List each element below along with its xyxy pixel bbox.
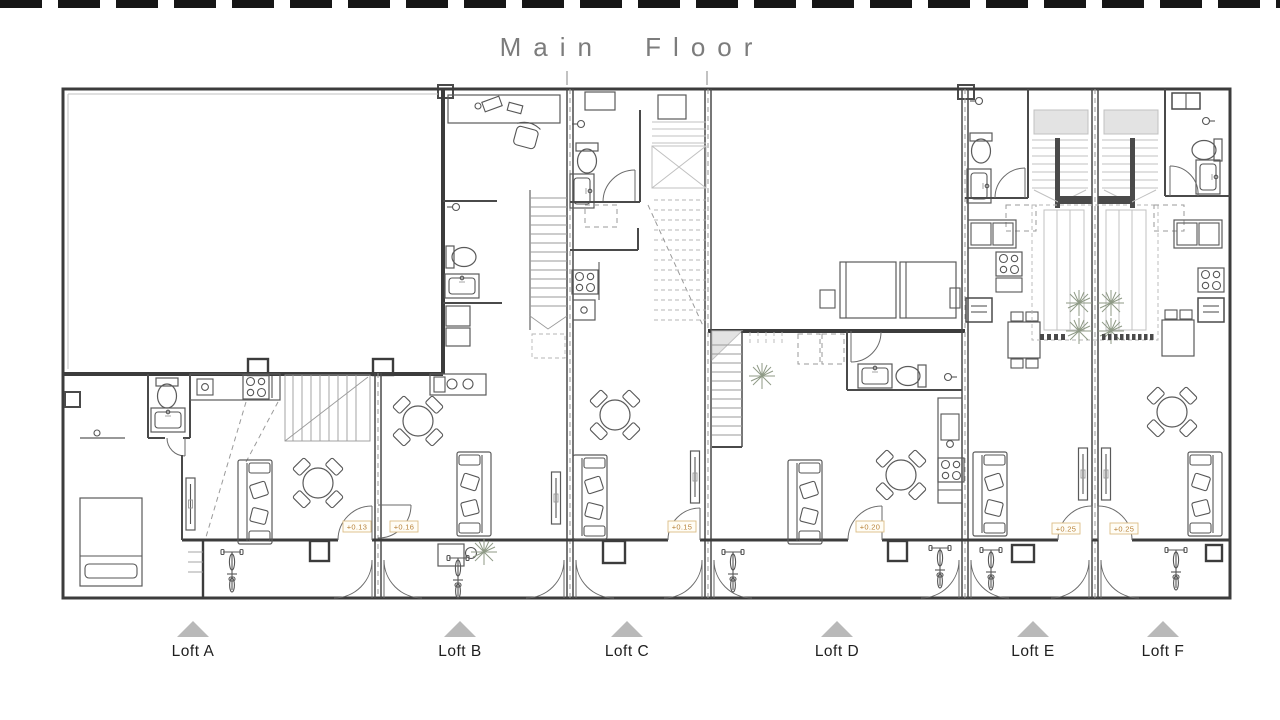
kitchen-counter — [938, 398, 964, 503]
tv-icon — [552, 472, 561, 524]
loft-marker-c: Loft C — [605, 621, 649, 660]
porch-walls — [182, 540, 1230, 598]
door-arc — [384, 560, 422, 598]
stairs-icon — [1102, 110, 1158, 208]
unit-loft-c — [570, 92, 706, 540]
dining-table-icon — [393, 396, 444, 447]
loft-marker-icon — [1147, 621, 1179, 637]
stove-icon — [996, 252, 1022, 276]
loft-marker-icon — [444, 621, 476, 637]
toilet-icon — [896, 365, 926, 387]
loft-marker-d: Loft D — [815, 621, 859, 660]
cabinet — [1172, 93, 1200, 109]
elevation-badge: +0.25 — [1052, 523, 1080, 534]
door-arc — [664, 560, 702, 598]
bicycles — [221, 546, 1187, 599]
bike-icon — [929, 546, 951, 589]
column — [310, 541, 329, 561]
loft-marker-f: Loft F — [1142, 621, 1185, 660]
elevation-badge: +0.25 — [1110, 523, 1138, 534]
dining-table-icon — [1162, 310, 1194, 356]
furniture-above-dashed — [798, 334, 820, 364]
sofa-icon — [238, 460, 272, 544]
closet-dashed — [1154, 205, 1184, 231]
bike-icon — [221, 550, 243, 593]
stove-icon — [572, 270, 598, 294]
elevation-badge: +0.13 — [343, 521, 371, 532]
sofa-icon — [573, 455, 607, 539]
column — [1206, 545, 1222, 561]
closet — [446, 328, 470, 346]
kitchen-counter — [190, 374, 280, 400]
sofa-icon — [973, 452, 1007, 536]
bench — [1174, 220, 1222, 248]
loft-markers: Loft A Loft B Loft C Loft D Loft E Loft … — [172, 621, 1185, 660]
party-wall-a-b — [375, 373, 381, 598]
svg-text:+0.20: +0.20 — [860, 523, 880, 532]
svg-text:+0.16: +0.16 — [394, 523, 414, 532]
unit-loft-b — [378, 95, 567, 566]
sink-vanity-icon — [445, 274, 479, 298]
loft-marker-icon — [821, 621, 853, 637]
elevation-badge: +0.20 — [856, 521, 884, 532]
dining-table-icon — [590, 390, 641, 441]
unit-loft-f — [1098, 89, 1230, 540]
loft-marker-icon — [611, 621, 643, 637]
shower-icon — [447, 204, 460, 211]
bike-icon — [447, 556, 469, 599]
door-arc — [526, 560, 564, 598]
sink-vanity-icon — [858, 364, 892, 388]
loft-label: Loft D — [815, 643, 859, 660]
stove-icon — [243, 375, 269, 399]
svg-text:+0.13: +0.13 — [347, 523, 367, 532]
column — [1012, 545, 1034, 562]
stairs-icon — [1032, 110, 1088, 208]
loft-label: Loft A — [172, 643, 215, 660]
toilet-icon — [576, 143, 598, 173]
unit-loft-d — [712, 262, 964, 544]
loft-label: Loft E — [1011, 643, 1055, 660]
elevation-badge: +0.16 — [390, 521, 418, 532]
plant-icon — [749, 363, 775, 389]
column — [603, 541, 625, 563]
page-title: Main Floor — [500, 32, 765, 62]
sink-vanity-icon — [1196, 160, 1220, 194]
closet — [446, 306, 470, 326]
unit-loft-e — [965, 89, 1092, 540]
loft-marker-b: Loft B — [438, 621, 482, 660]
loft-label: Loft F — [1142, 643, 1185, 660]
dining-table-icon — [1008, 312, 1040, 368]
loft-marker-e: Loft E — [1011, 621, 1055, 660]
dining-table-icon — [293, 458, 344, 509]
office-chair-icon — [512, 120, 542, 150]
coat-hook-icon — [94, 430, 100, 436]
bed-icon — [80, 498, 142, 586]
plant-icon — [1098, 290, 1124, 316]
bike-icon — [1165, 548, 1187, 591]
sink-vanity-icon — [151, 408, 185, 432]
elevation-badge: +0.15 — [668, 521, 696, 532]
kitchen-cabinet — [1198, 298, 1224, 322]
party-walls — [375, 89, 1098, 598]
sofa-icon — [457, 452, 491, 536]
door-arc — [1101, 560, 1139, 598]
door-arc — [851, 331, 881, 362]
kitchen-sink-icon — [197, 379, 213, 395]
loft-label: Loft C — [605, 643, 649, 660]
dining-table-icon — [1147, 387, 1198, 438]
bed-icon — [840, 262, 896, 318]
shower-icon — [1203, 118, 1216, 125]
desk — [448, 95, 560, 123]
tv-icon — [1102, 448, 1111, 500]
closet — [658, 95, 686, 119]
kitchen-cabinet — [966, 298, 992, 322]
loft-marker-a: Loft A — [172, 621, 215, 660]
door-arc — [995, 168, 1025, 198]
floor-plan-drawing: Main Floor — [0, 0, 1280, 720]
sofa-icon — [1188, 452, 1222, 536]
svg-text:+0.25: +0.25 — [1114, 525, 1134, 534]
door-arc — [1170, 166, 1198, 196]
floor-plan-canvas: Main Floor — [0, 0, 1280, 720]
party-wall-d-e — [962, 89, 968, 598]
closet-dashed — [1006, 205, 1036, 231]
loft-marker-icon — [177, 621, 209, 637]
dining-table-icon — [876, 450, 927, 501]
bed-icon — [900, 262, 956, 318]
loft-label: Loft B — [438, 643, 482, 660]
nightstand — [820, 290, 835, 308]
shower-icon — [945, 374, 958, 381]
shaft — [65, 392, 80, 407]
tv-icon — [1079, 448, 1088, 500]
tv-icon — [186, 478, 195, 530]
toilet-icon — [446, 246, 476, 268]
door-arc — [603, 170, 635, 202]
bench — [968, 220, 1016, 248]
nightstand — [950, 288, 960, 308]
stairs-icon — [712, 331, 782, 447]
party-wall-e-f — [1092, 89, 1098, 598]
stairs-icon — [530, 190, 567, 358]
toilet-icon — [1192, 139, 1222, 161]
shower-icon — [572, 121, 585, 128]
kitchen-sink-icon — [941, 414, 959, 440]
plant-icon — [471, 539, 497, 565]
tv-icon — [691, 451, 700, 503]
unit-loft-a — [65, 374, 372, 586]
furniture-above-dashed — [822, 334, 844, 364]
toilet-icon — [970, 133, 992, 163]
loft-marker-icon — [1017, 621, 1049, 637]
kitchen-sink-icon — [573, 300, 595, 320]
svg-text:+0.15: +0.15 — [672, 523, 692, 532]
column — [888, 541, 907, 561]
stove-icon — [938, 458, 964, 482]
door-arc — [167, 438, 185, 456]
paver-row — [1040, 334, 1154, 340]
door-arc — [1051, 560, 1089, 598]
door-arc — [576, 560, 614, 598]
stairs-void — [648, 122, 706, 328]
toilet-icon — [156, 378, 178, 408]
bike-icon — [722, 550, 744, 593]
svg-text:+0.25: +0.25 — [1056, 525, 1076, 534]
door-arc — [334, 560, 372, 598]
stairs-icon — [285, 375, 370, 441]
closet — [585, 92, 615, 110]
sofa-icon — [788, 460, 822, 544]
bike-icon — [980, 548, 1002, 591]
party-wall-b-c — [567, 89, 573, 598]
stove-icon — [1198, 268, 1224, 292]
